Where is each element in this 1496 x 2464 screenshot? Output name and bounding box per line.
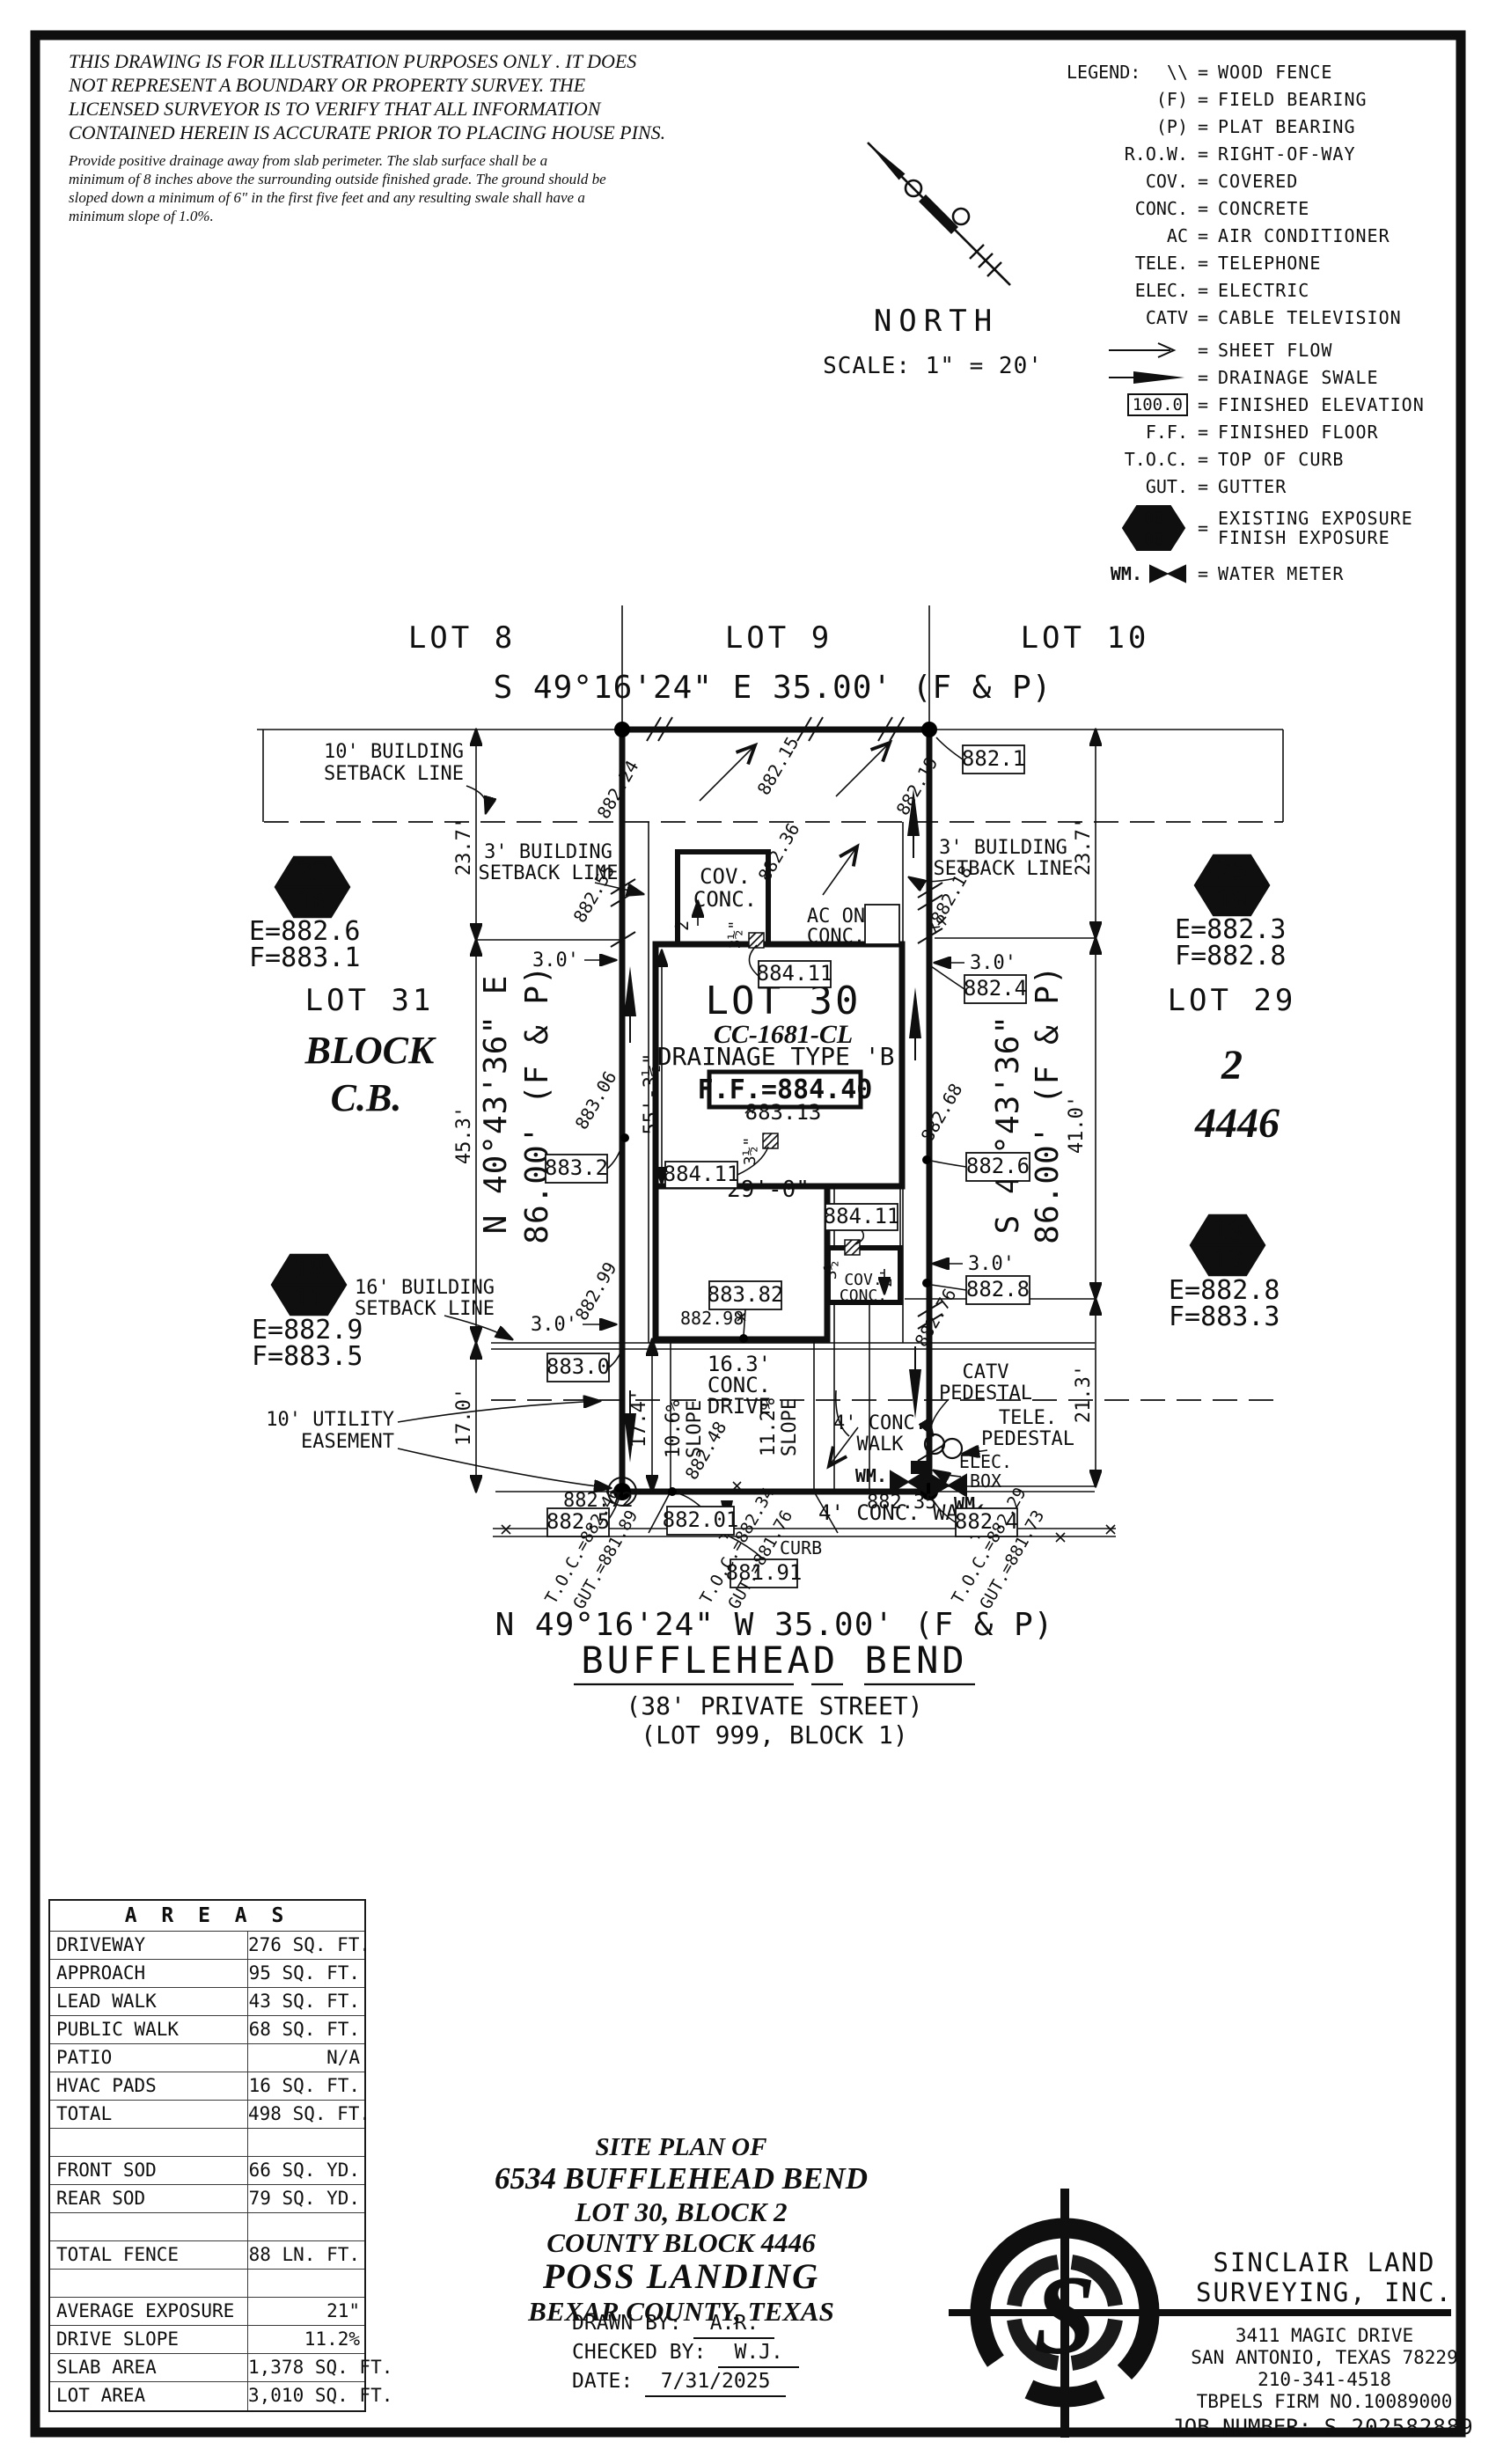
table-row: SLAB AREA1,378 SQ. FT. bbox=[50, 2354, 364, 2382]
svg-text:883.82: 883.82 bbox=[708, 1282, 784, 1307]
table-row bbox=[50, 2270, 364, 2298]
north-arrow-icon bbox=[868, 143, 1010, 285]
cov-conc-patio-1: COV. bbox=[700, 864, 751, 889]
legend-row-concrete: CONC. =CONCRETE bbox=[1067, 194, 1454, 222]
spot-882-76: 882.76 bbox=[911, 1285, 961, 1351]
spot-882-99: 882.99 bbox=[571, 1258, 621, 1324]
water-meter-icon bbox=[1148, 563, 1188, 584]
dim-3half-c: 3½" bbox=[822, 1251, 840, 1280]
bearing-right-1: S 40°43'36" W bbox=[990, 975, 1026, 1235]
bearing-left-1: N 40°43'36" E bbox=[478, 975, 514, 1235]
dim-3-0-b: 3.0' bbox=[970, 952, 1016, 974]
lot10-label: LOT 10 bbox=[1021, 620, 1150, 656]
exposure-hexagon-19-13: 19 13 bbox=[1191, 1215, 1265, 1276]
dim-41-0: 41.0' bbox=[1066, 1096, 1088, 1154]
date-value: 7/31/2025 bbox=[645, 2368, 786, 2397]
table-row bbox=[50, 2129, 364, 2157]
exposure-f3: F=883.5 bbox=[252, 1341, 363, 1372]
svg-text:884.11: 884.11 bbox=[664, 1162, 740, 1186]
dim-23-7-left: 23.7' bbox=[453, 818, 475, 876]
svg-text:00: 00 bbox=[1144, 509, 1164, 528]
spot-882-24: 882.24 bbox=[593, 757, 643, 823]
disclaimer-line: NOT REPRESENT A BOUNDARY OR PROPERTY SUR… bbox=[69, 73, 665, 97]
firm-city: SAN ANTONIO, TEXAS 78229 bbox=[1166, 2347, 1483, 2369]
exposure-hexagon-icon: 00 00 bbox=[1119, 501, 1188, 555]
legend-row-water-meter: WM. =WATER METER bbox=[1067, 556, 1454, 591]
svg-text:884.11: 884.11 bbox=[824, 1204, 900, 1228]
title-block: SITE PLAN OF 6534 BUFFLEHEAD BEND LOT 30… bbox=[470, 2133, 892, 2328]
disclaimer-paragraph: THIS DRAWING IS FOR ILLUSTRATION PURPOSE… bbox=[69, 49, 665, 144]
svg-text:883.2: 883.2 bbox=[545, 1155, 608, 1180]
drainage-swale-icon bbox=[1107, 369, 1188, 386]
slope2-pct: 11.2% bbox=[758, 1398, 780, 1456]
dim-45-3: 45.3' bbox=[453, 1106, 475, 1164]
svg-text:18: 18 bbox=[293, 1255, 325, 1286]
firm-number: TBPELS FIRM NO.10089000 bbox=[1166, 2391, 1483, 2413]
legend-row-covered: COV. =COVERED bbox=[1067, 167, 1454, 194]
dim-3-0-c: 3.0' bbox=[531, 1314, 577, 1336]
table-row: TOTAL FENCE88 LN. FT. bbox=[50, 2241, 364, 2270]
table-row: APPROACH95 SQ. FT. bbox=[50, 1960, 364, 1988]
street-type: (38' PRIVATE STREET) bbox=[626, 1691, 922, 1720]
svg-text:884.11: 884.11 bbox=[757, 961, 833, 986]
exposure-hexagon-25-19: 25 19 bbox=[1195, 855, 1269, 916]
svg-text:882.6: 882.6 bbox=[966, 1154, 1030, 1178]
firm-name: SINCLAIR LAND SURVEYING, INC. bbox=[1175, 2248, 1474, 2307]
disclaimer-line: CONTAINED HEREIN IS ACCURATE PRIOR TO PL… bbox=[69, 121, 665, 144]
job-number-row: JOB NUMBER: S-202582889 bbox=[1160, 2415, 1485, 2439]
block-cb: C.B. bbox=[331, 1076, 402, 1119]
logo-letter: S bbox=[1033, 2253, 1096, 2378]
sheet-flow-icon bbox=[1107, 341, 1188, 359]
spot-882-19: 882.19 bbox=[892, 753, 942, 819]
elec-box-1: ELEC. bbox=[959, 1451, 1012, 1472]
firm-street: 3411 MAGIC DRIVE bbox=[1166, 2325, 1483, 2347]
job-number-label: JOB NUMBER: bbox=[1171, 2415, 1311, 2439]
table-row: TOTAL498 SQ. FT. bbox=[50, 2101, 364, 2129]
checked-by-value: W.J. bbox=[718, 2339, 799, 2368]
dim-2-rear: 2' bbox=[671, 910, 693, 931]
firm-address: 3411 MAGIC DRIVE SAN ANTONIO, TEXAS 7822… bbox=[1166, 2325, 1483, 2413]
areas-table: A R E A S DRIVEWAY276 SQ. FT. APPROACH95… bbox=[48, 1899, 366, 2412]
svg-text:882.01: 882.01 bbox=[663, 1507, 739, 1532]
svg-text:22: 22 bbox=[297, 857, 328, 888]
legend-row-wood-fence: LEGEND:\\ =WOOD FENCE bbox=[1067, 58, 1454, 85]
table-row bbox=[50, 2213, 364, 2241]
legend-row-electric: ELEC. =ELECTRIC bbox=[1067, 276, 1454, 304]
table-row: REAR SOD79 SQ. YD. bbox=[50, 2185, 364, 2213]
lot9-label: LOT 9 bbox=[725, 620, 832, 656]
dim-3half-b: 3½" bbox=[741, 1137, 759, 1166]
ac-on-conc-2: CONC. bbox=[807, 926, 865, 948]
title-line-3: LOT 30, BLOCK 2 bbox=[470, 2196, 892, 2228]
walk-label-2: WALK bbox=[857, 1434, 905, 1456]
legend-row-field-bearing: (F) =FIELD BEARING bbox=[1067, 85, 1454, 113]
drainage-note-line: minimum slope of 1.0%. bbox=[69, 207, 606, 225]
dim-23-7-right: 23.7' bbox=[1073, 818, 1095, 876]
checked-by-row: CHECKED BY: W.J. bbox=[572, 2339, 871, 2368]
cov-conc-patio-2: CONC. bbox=[693, 887, 757, 912]
legend-title: LEGEND: bbox=[1067, 62, 1140, 83]
table-row: HVAC PADS16 SQ. FT. bbox=[50, 2072, 364, 2101]
table-row: LOT AREA3,010 SQ. FT. bbox=[50, 2382, 364, 2410]
drainage-note-line: minimum of 8 inches above the surroundin… bbox=[69, 170, 606, 188]
areas-table-title: A R E A S bbox=[50, 1901, 364, 1932]
table-row: PUBLIC WALK68 SQ. FT. bbox=[50, 2016, 364, 2044]
job-number-value: S-202582889 bbox=[1324, 2415, 1474, 2439]
spot-882-35: 882.35 bbox=[867, 1492, 936, 1514]
utility-easement-line2: EASEMENT bbox=[301, 1431, 394, 1453]
dim-17-0: 17.0' bbox=[453, 1388, 475, 1446]
lot31-label: LOT 31 bbox=[305, 983, 435, 1018]
dim-3-0-d: 3.0' bbox=[968, 1253, 1015, 1275]
drainage-note-line: sloped down a minimum of 6" in the first… bbox=[69, 188, 606, 207]
legend-row-ac: AC =AIR CONDITIONER bbox=[1067, 222, 1454, 249]
catv-pedestal-2: PEDESTAL bbox=[939, 1382, 1032, 1404]
setback10-line2: SETBACK LINE bbox=[324, 763, 464, 785]
bearing-left-2: 86.00' (F & P) bbox=[519, 964, 555, 1243]
setback3-right-line1: 3' BUILDING bbox=[939, 837, 1067, 859]
drawn-by-row: DRAWN BY: A.R. bbox=[572, 2310, 871, 2339]
legend-row-drainage-swale: =DRAINAGE SWALE bbox=[1067, 363, 1454, 391]
block-word: BLOCK bbox=[304, 1029, 436, 1072]
spot-882-15: 882.15 bbox=[753, 733, 803, 799]
dim-3half-a: 3½" bbox=[726, 920, 744, 950]
walk-label-1: 4' CONC. bbox=[833, 1412, 927, 1434]
right-county-block: 4446 bbox=[1194, 1100, 1280, 1147]
setback3-left-line1: 3' BUILDING bbox=[484, 841, 612, 863]
spot-882-98: 882.98 bbox=[680, 1308, 744, 1329]
cov-conc-porch-2: CONC. bbox=[840, 1287, 887, 1305]
bearing-bottom: N 49°16'24" W 35.00' (F & P) bbox=[495, 1607, 1054, 1643]
lot8-label: LOT 8 bbox=[408, 620, 516, 656]
slope1-pct: 10.6% bbox=[663, 1400, 685, 1458]
north-label: NORTH bbox=[874, 304, 999, 339]
title-line-4: COUNTY BLOCK 4446 bbox=[470, 2228, 892, 2258]
exposure-f2: F=882.8 bbox=[1175, 941, 1286, 972]
legend-row-telephone: TELE. =TELEPHONE bbox=[1067, 249, 1454, 276]
svg-text:16: 16 bbox=[297, 887, 328, 918]
street-lot: (LOT 999, BLOCK 1) bbox=[641, 1720, 907, 1749]
legend-row-exposure: 00 00 = EXISTING EXPOSUREFINISH EXPOSURE bbox=[1067, 500, 1454, 556]
svg-text:883.0: 883.0 bbox=[546, 1354, 610, 1379]
legend-row-top-of-curb: T.O.C. =TOP OF CURB bbox=[1067, 445, 1454, 473]
title-line-5: POSS LANDING bbox=[470, 2258, 892, 2295]
svg-text:25: 25 bbox=[1216, 855, 1248, 886]
ff-grade: 883.13 bbox=[745, 1100, 822, 1125]
legend-row-plat-bearing: (P) =PLAT BEARING bbox=[1067, 113, 1454, 140]
svg-text:882.4: 882.4 bbox=[964, 976, 1027, 1001]
drainage-note-paragraph: Provide positive drainage away from slab… bbox=[69, 151, 606, 225]
table-row: PATION/A bbox=[50, 2044, 364, 2072]
table-row: DRIVEWAY276 SQ. FT. bbox=[50, 1932, 364, 1960]
tele-pedestal-1: TELE. bbox=[999, 1407, 1057, 1429]
spot-883-06: 883.06 bbox=[571, 1067, 621, 1133]
exposure-f1: F=883.1 bbox=[249, 942, 360, 973]
elec-box-2: BOX bbox=[970, 1470, 1001, 1492]
svg-text:13: 13 bbox=[1212, 1245, 1243, 1276]
legend-row-sheet-flow: =SHEET FLOW bbox=[1067, 336, 1454, 363]
legend-row-catv: CATV =CABLE TELEVISION bbox=[1067, 304, 1454, 331]
legend-row-finished-floor: F.F. =FINISHED FLOOR bbox=[1067, 418, 1454, 445]
bearing-top: S 49°16'24" E 35.00' (F & P) bbox=[494, 670, 1052, 706]
firm-name-line2: SURVEYING, INC. bbox=[1175, 2277, 1474, 2307]
dim-3-0-a: 3.0' bbox=[532, 950, 579, 972]
dim-21-3: 21.3' bbox=[1073, 1365, 1095, 1423]
lot29-label: LOT 29 bbox=[1168, 983, 1297, 1018]
legend-row-gutter: GUT. =GUTTER bbox=[1067, 473, 1454, 500]
drainage-note-line: Provide positive drainage away from slab… bbox=[69, 151, 606, 170]
svg-text:11: 11 bbox=[293, 1285, 325, 1316]
setback10-line1: 10' BUILDING bbox=[324, 741, 464, 763]
table-row: AVERAGE EXPOSURE21" bbox=[50, 2298, 364, 2326]
drawn-by-value: A.R. bbox=[693, 2310, 774, 2339]
svg-text:882.8: 882.8 bbox=[966, 1277, 1030, 1302]
survey-sheet: NORTH SCALE: 1" = 20' bbox=[0, 0, 1496, 2464]
title-line-1: SITE PLAN OF bbox=[470, 2133, 892, 2161]
table-row: LEAD WALK43 SQ. FT. bbox=[50, 1988, 364, 2016]
title-line-2: 6534 BUFFLEHEAD BEND bbox=[470, 2161, 892, 2196]
ac-on-conc-1: AC ON bbox=[807, 906, 865, 928]
svg-text:00: 00 bbox=[1144, 530, 1164, 549]
firm-name-line1: SINCLAIR LAND bbox=[1175, 2248, 1474, 2277]
legend-row-row: R.O.W. =RIGHT-OF-WAY bbox=[1067, 140, 1454, 167]
exposure-hexagon-22-16: 22 16 bbox=[275, 857, 349, 918]
legend-row-finished-elevation: 100.0 =FINISHED ELEVATION bbox=[1067, 391, 1454, 418]
curb-label: CURB bbox=[780, 1537, 822, 1558]
street-name: BUFFLEHEAD BEND bbox=[581, 1639, 967, 1682]
scale-label: SCALE: 1" = 20' bbox=[823, 353, 1043, 379]
exposure-hexagon-18-11: 18 11 bbox=[272, 1255, 346, 1316]
utility-easement-line1: 10' UTILITY bbox=[266, 1409, 394, 1431]
setback16-line2: SETBACK LINE bbox=[355, 1298, 495, 1320]
boxed-elevation-icon: 100.0 bbox=[1127, 393, 1188, 416]
spot-882-68: 882.68 bbox=[917, 1080, 967, 1146]
drainage-type-label: DRAINAGE TYPE 'B' bbox=[657, 1042, 910, 1071]
signature-block: DRAWN BY: A.R. CHECKED BY: W.J. DATE: 7/… bbox=[572, 2310, 871, 2397]
slope2-word: SLOPE bbox=[779, 1398, 801, 1456]
disclaimer-line: LICENSED SURVEYOR IS TO VERIFY THAT ALL … bbox=[69, 97, 665, 121]
tele-pedestal-2: PEDESTAL bbox=[981, 1428, 1074, 1450]
right-block-number: 2 bbox=[1221, 1042, 1243, 1089]
svg-text:19: 19 bbox=[1212, 1215, 1243, 1246]
table-row: DRIVE SLOPE11.2% bbox=[50, 2326, 364, 2354]
svg-text:882.1: 882.1 bbox=[962, 746, 1025, 771]
disclaimer-line: THIS DRAWING IS FOR ILLUSTRATION PURPOSE… bbox=[69, 49, 665, 73]
catv-pedestal-1: CATV bbox=[963, 1361, 1009, 1383]
exposure-f4: F=883.3 bbox=[1169, 1302, 1280, 1332]
firm-phone: 210-341-4518 bbox=[1166, 2369, 1483, 2391]
bearing-right-2: 86.00' (F & P) bbox=[1030, 964, 1066, 1243]
date-row: DATE: 7/31/2025 bbox=[572, 2368, 871, 2397]
wm-label-1: WM. bbox=[855, 1465, 887, 1486]
dim-17-4: 17.4' bbox=[628, 1390, 650, 1448]
table-row: FRONT SOD66 SQ. YD. bbox=[50, 2157, 364, 2185]
svg-text:19: 19 bbox=[1216, 885, 1248, 916]
legend: LEGEND:\\ =WOOD FENCE (F) =FIELD BEARING… bbox=[1067, 58, 1454, 591]
setback16-line1: 16' BUILDING bbox=[355, 1277, 495, 1299]
